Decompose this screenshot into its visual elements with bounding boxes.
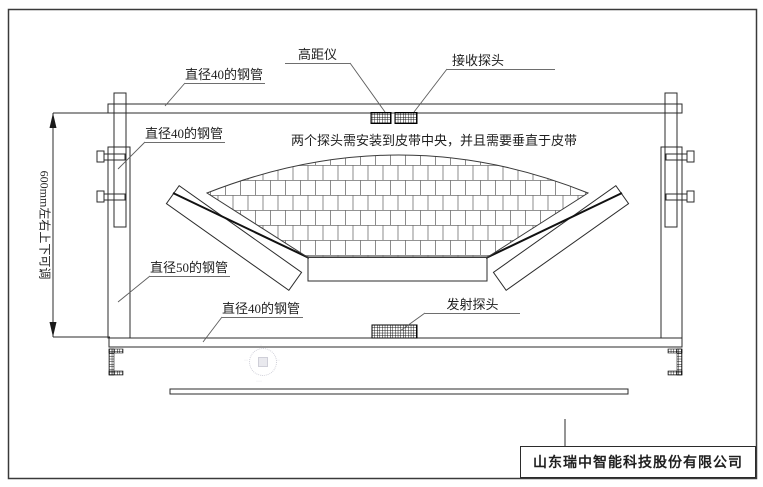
cad-drawing-page: 高距仪 接收探头 直径40的钢管 直径40的钢管 直径50的钢管 直径40的钢管… — [0, 0, 763, 487]
title-block-company-box: 山东瑞中智能科技股份有限公司 — [520, 446, 756, 478]
company-name: 山东瑞中智能科技股份有限公司 — [533, 452, 743, 472]
transmitter-probe-sensor — [372, 325, 417, 338]
label-pipe40-top: 直径40的钢管 — [185, 67, 265, 84]
dimension-arrow-up — [50, 113, 57, 128]
bottom-horizontal-pipe40 — [109, 338, 682, 347]
dimension-arrow-down — [50, 322, 57, 337]
dimension-text-600mm: 600mm左右上下可调 — [37, 171, 54, 280]
watermark-stamp: · ·· ·· · ··· — [246, 347, 280, 381]
label-pipe40-bottom: 直径40的钢管 — [222, 301, 303, 318]
right-clamp-bolts — [666, 151, 694, 202]
label-pipe50-left: 直径50的钢管 — [150, 260, 230, 277]
drawing-linework — [0, 0, 763, 487]
receiver-probe-sensor — [395, 113, 417, 124]
center-roller — [308, 257, 487, 281]
left-outer-post-pipe50 — [108, 147, 130, 338]
label-height-gauge: 高距仪 — [285, 47, 350, 64]
right-outer-post-pipe50 — [661, 147, 682, 338]
label-receiver-probe: 接收探头 — [447, 53, 555, 70]
material-pile-hatch — [207, 155, 588, 258]
label-pipe40-mid: 直径40的钢管 — [145, 126, 225, 143]
top-horizontal-pipe40 — [108, 104, 682, 113]
belt-trough-section — [166, 155, 628, 290]
left-clamp-bolts — [97, 151, 125, 202]
vertical-dimension-600mm — [50, 113, 111, 337]
left-c-channel-foot — [109, 349, 123, 375]
center-install-note: 两个探头需安装到皮带中央，并且需要垂直于皮带 — [286, 130, 582, 149]
right-c-channel-foot — [668, 349, 682, 375]
belt-return-line — [170, 389, 628, 394]
height-gauge-sensor — [371, 113, 391, 124]
label-transmitter-probe: 发射探头 — [425, 297, 520, 314]
